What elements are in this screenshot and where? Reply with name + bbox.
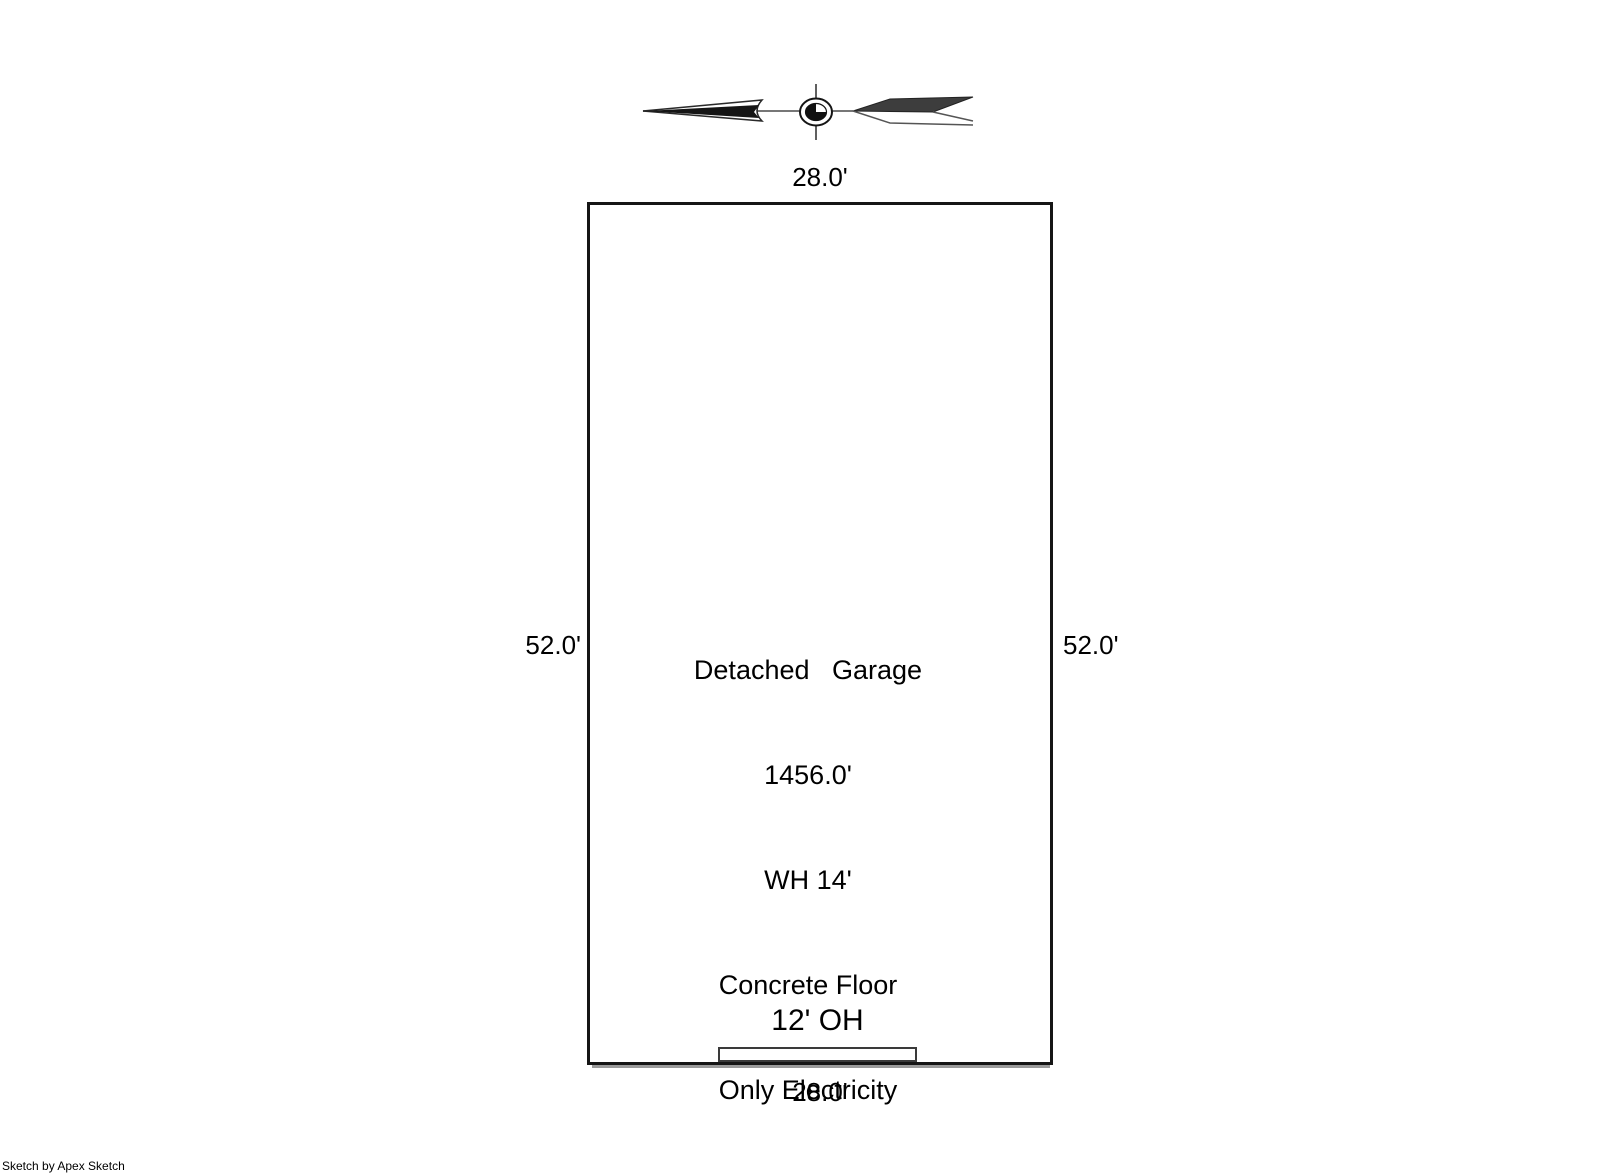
dimension-label-bottom: 28.0'	[588, 1077, 1052, 1108]
garage-floor-label: Concrete Floor	[576, 968, 1040, 1003]
apex-sketch-credit: Sketch by Apex Sketch	[2, 1159, 125, 1173]
dimension-label-right: 52.0'	[1063, 630, 1163, 661]
garage-wall-height-label: WH 14'	[576, 863, 1040, 898]
garage-type-label: Detached Garage	[576, 653, 1040, 688]
north-arrow-icon	[620, 75, 990, 150]
dimension-label-top: 28.0'	[588, 162, 1052, 193]
garage-area-label: 1456.0'	[576, 758, 1040, 793]
overhead-door	[718, 1047, 917, 1062]
sketch-canvas: 28.0' 52.0' 52.0' Detached Garage 1456.0…	[0, 0, 1601, 1174]
overhead-door-label: 12' OH	[718, 1004, 917, 1038]
dimension-label-left: 52.0'	[481, 630, 581, 661]
